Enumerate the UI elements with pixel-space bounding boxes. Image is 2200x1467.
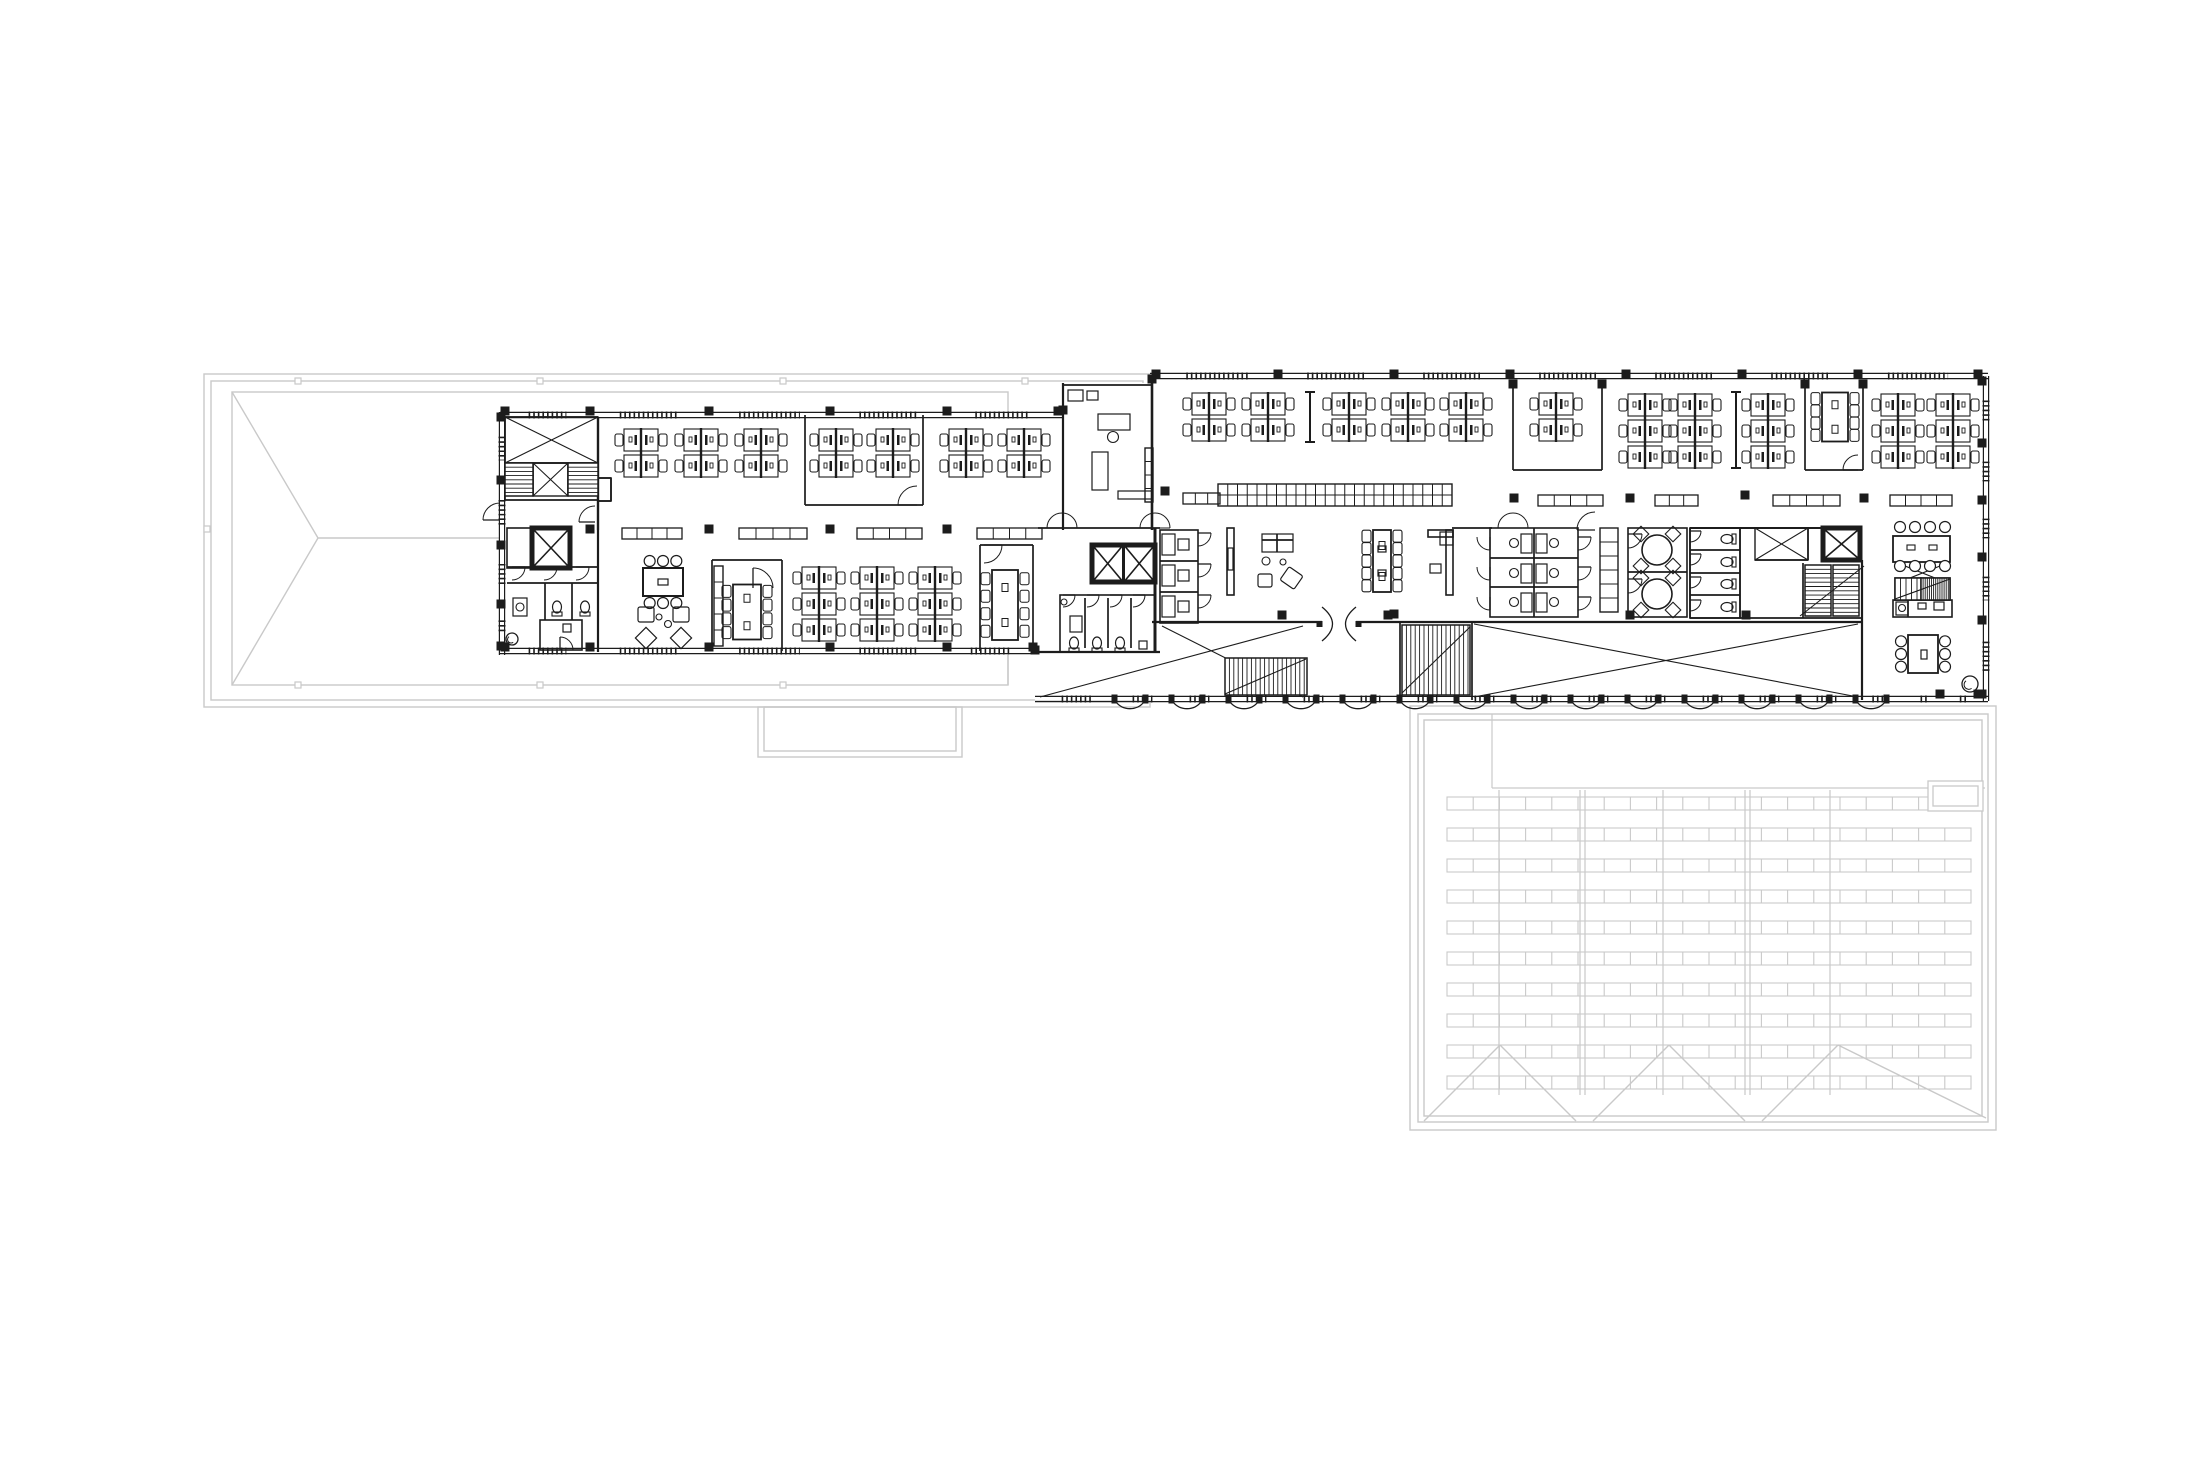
monitor bbox=[1460, 425, 1463, 435]
monitor bbox=[970, 461, 973, 471]
chair bbox=[1510, 569, 1519, 578]
monitor bbox=[645, 461, 648, 471]
chair bbox=[1510, 598, 1519, 607]
monitor bbox=[1649, 400, 1652, 410]
monitor bbox=[1470, 425, 1473, 435]
monitor bbox=[1412, 399, 1415, 409]
door-arc bbox=[483, 503, 500, 520]
monitor bbox=[823, 599, 826, 609]
desk-cluster bbox=[1927, 393, 1979, 469]
monitor bbox=[1343, 399, 1346, 409]
monitor bbox=[823, 573, 826, 583]
column bbox=[586, 525, 595, 534]
monitor bbox=[830, 435, 833, 445]
column bbox=[705, 643, 714, 652]
column bbox=[497, 600, 506, 609]
monitor bbox=[1699, 426, 1702, 436]
monitor bbox=[1902, 426, 1905, 436]
column bbox=[1978, 553, 1987, 562]
column bbox=[826, 407, 835, 416]
monitor bbox=[871, 599, 874, 609]
monitor bbox=[1343, 425, 1346, 435]
monitor bbox=[695, 461, 698, 471]
floor-plate bbox=[1150, 378, 1990, 700]
desk-cluster bbox=[1742, 393, 1794, 469]
column bbox=[705, 525, 714, 534]
monitor bbox=[887, 435, 890, 445]
monitor bbox=[635, 435, 638, 445]
column bbox=[1510, 494, 1519, 503]
column bbox=[826, 525, 835, 534]
monitor bbox=[881, 599, 884, 609]
chair bbox=[1550, 598, 1559, 607]
column bbox=[1978, 377, 1987, 386]
monitor bbox=[1699, 400, 1702, 410]
monitor bbox=[1772, 452, 1775, 462]
monitor bbox=[705, 435, 708, 445]
column bbox=[1509, 380, 1518, 389]
floor-plan-sheet: Office building floor plan drawing bbox=[0, 0, 2200, 1467]
monitor bbox=[705, 461, 708, 471]
monitor bbox=[1203, 425, 1206, 435]
monitor bbox=[830, 461, 833, 471]
monitor bbox=[823, 625, 826, 635]
monitor bbox=[887, 461, 890, 471]
monitor bbox=[1957, 452, 1960, 462]
monitor bbox=[929, 599, 932, 609]
column bbox=[1384, 611, 1393, 620]
desk-cluster bbox=[793, 566, 845, 642]
monitor bbox=[1213, 425, 1216, 435]
monitor bbox=[1402, 425, 1405, 435]
monitor bbox=[1957, 426, 1960, 436]
monitor bbox=[1470, 399, 1473, 409]
desk-cluster bbox=[1669, 393, 1721, 469]
monitor bbox=[960, 435, 963, 445]
building-plates bbox=[500, 378, 1990, 700]
monitor bbox=[1772, 426, 1775, 436]
monitor bbox=[1560, 399, 1563, 409]
column bbox=[586, 407, 595, 416]
monitor bbox=[755, 461, 758, 471]
monitor bbox=[1213, 399, 1216, 409]
monitor bbox=[1902, 400, 1905, 410]
monitor bbox=[1649, 452, 1652, 462]
monitor bbox=[755, 435, 758, 445]
monitor bbox=[1892, 452, 1895, 462]
monitor bbox=[813, 573, 816, 583]
column bbox=[1978, 439, 1987, 448]
monitor bbox=[1772, 400, 1775, 410]
monitor bbox=[1892, 400, 1895, 410]
monitor bbox=[1947, 426, 1950, 436]
monitor bbox=[1639, 400, 1642, 410]
chair bbox=[516, 603, 524, 611]
monitor bbox=[1018, 461, 1021, 471]
elevator-shaft bbox=[532, 528, 570, 568]
column bbox=[1274, 370, 1283, 379]
monitor bbox=[1353, 425, 1356, 435]
column bbox=[586, 643, 595, 652]
monitor bbox=[881, 573, 884, 583]
floor-plan-drawing bbox=[0, 0, 2200, 1467]
floor-plate bbox=[1035, 652, 1155, 700]
canopy-roof bbox=[758, 707, 962, 757]
monitor bbox=[1272, 425, 1275, 435]
monitor bbox=[1639, 426, 1642, 436]
monitor bbox=[1892, 426, 1895, 436]
chair bbox=[1108, 432, 1119, 443]
column bbox=[1859, 380, 1868, 389]
column bbox=[1148, 375, 1157, 384]
desk-cluster bbox=[1872, 393, 1924, 469]
column bbox=[705, 407, 714, 416]
monitor bbox=[929, 625, 932, 635]
monitor bbox=[1203, 399, 1206, 409]
column bbox=[1031, 646, 1040, 655]
column bbox=[497, 476, 506, 485]
column bbox=[497, 413, 506, 422]
chair bbox=[1262, 557, 1270, 565]
column bbox=[1741, 491, 1750, 500]
column bbox=[1978, 616, 1987, 625]
monitor bbox=[939, 573, 942, 583]
monitor bbox=[939, 599, 942, 609]
column bbox=[826, 643, 835, 652]
column bbox=[1978, 496, 1987, 505]
monitor bbox=[1689, 452, 1692, 462]
monitor bbox=[960, 461, 963, 471]
chair bbox=[1280, 559, 1286, 565]
desk-cluster bbox=[1619, 393, 1671, 469]
column bbox=[943, 643, 952, 652]
stair-flight bbox=[1895, 578, 1921, 600]
monitor bbox=[1460, 399, 1463, 409]
chair bbox=[1061, 599, 1067, 605]
monitor bbox=[1550, 399, 1553, 409]
stair-flight bbox=[1921, 578, 1950, 600]
monitor bbox=[1762, 426, 1765, 436]
monitor bbox=[1947, 452, 1950, 462]
column bbox=[1860, 494, 1869, 503]
monitor bbox=[1560, 425, 1563, 435]
monitor bbox=[1353, 399, 1356, 409]
monitor bbox=[840, 461, 843, 471]
monitor bbox=[1699, 452, 1702, 462]
monitor bbox=[897, 461, 900, 471]
monitor bbox=[1689, 400, 1692, 410]
monitor bbox=[645, 435, 648, 445]
column bbox=[1936, 690, 1945, 699]
monitor bbox=[1762, 452, 1765, 462]
desk-cluster bbox=[851, 566, 903, 642]
monitor bbox=[1639, 452, 1642, 462]
chair bbox=[665, 621, 672, 628]
monitor bbox=[1762, 400, 1765, 410]
chair bbox=[1550, 539, 1559, 548]
monitor bbox=[1262, 399, 1265, 409]
monitor bbox=[897, 435, 900, 445]
stair-flight bbox=[568, 463, 598, 496]
column bbox=[497, 541, 506, 550]
column bbox=[1622, 370, 1631, 379]
column bbox=[1626, 494, 1635, 503]
monitor bbox=[840, 435, 843, 445]
monitor bbox=[1028, 435, 1031, 445]
monitor bbox=[1262, 425, 1265, 435]
monitor bbox=[871, 625, 874, 635]
monitor bbox=[1957, 400, 1960, 410]
monitor bbox=[1689, 426, 1692, 436]
column bbox=[1059, 406, 1068, 415]
chair bbox=[1550, 569, 1559, 578]
column bbox=[1390, 370, 1399, 379]
monitor bbox=[1902, 452, 1905, 462]
elevator-shaft bbox=[1823, 528, 1860, 560]
right-roof bbox=[1410, 706, 1996, 1130]
monitor bbox=[939, 625, 942, 635]
column bbox=[497, 642, 506, 651]
desk-cluster bbox=[909, 566, 961, 642]
column bbox=[943, 407, 952, 416]
column bbox=[943, 525, 952, 534]
column bbox=[1626, 611, 1635, 620]
monitor bbox=[1018, 435, 1021, 445]
monitor bbox=[1649, 426, 1652, 436]
monitor bbox=[1550, 425, 1553, 435]
monitor bbox=[765, 461, 768, 471]
monitor bbox=[813, 599, 816, 609]
monitor bbox=[1272, 399, 1275, 409]
column bbox=[1742, 611, 1751, 620]
column bbox=[1161, 487, 1170, 496]
elevator-shaft bbox=[1092, 545, 1155, 582]
monitor bbox=[871, 573, 874, 583]
monitor bbox=[813, 625, 816, 635]
monitor bbox=[695, 435, 698, 445]
column bbox=[1506, 370, 1515, 379]
monitor bbox=[635, 461, 638, 471]
monitor bbox=[1412, 425, 1415, 435]
chair bbox=[1899, 605, 1906, 612]
monitor bbox=[1947, 400, 1950, 410]
column bbox=[1738, 370, 1747, 379]
column bbox=[1854, 370, 1863, 379]
monitor bbox=[1028, 461, 1031, 471]
monitor bbox=[881, 625, 884, 635]
monitor bbox=[1402, 399, 1405, 409]
column bbox=[1598, 380, 1607, 389]
chair bbox=[656, 614, 662, 620]
stair-flight bbox=[505, 463, 533, 496]
monitor bbox=[765, 435, 768, 445]
roof-panel-grid bbox=[1447, 797, 1971, 1089]
column bbox=[1801, 380, 1810, 389]
monitor bbox=[929, 573, 932, 583]
monitor bbox=[970, 435, 973, 445]
chair bbox=[1510, 539, 1519, 548]
column bbox=[1278, 611, 1287, 620]
